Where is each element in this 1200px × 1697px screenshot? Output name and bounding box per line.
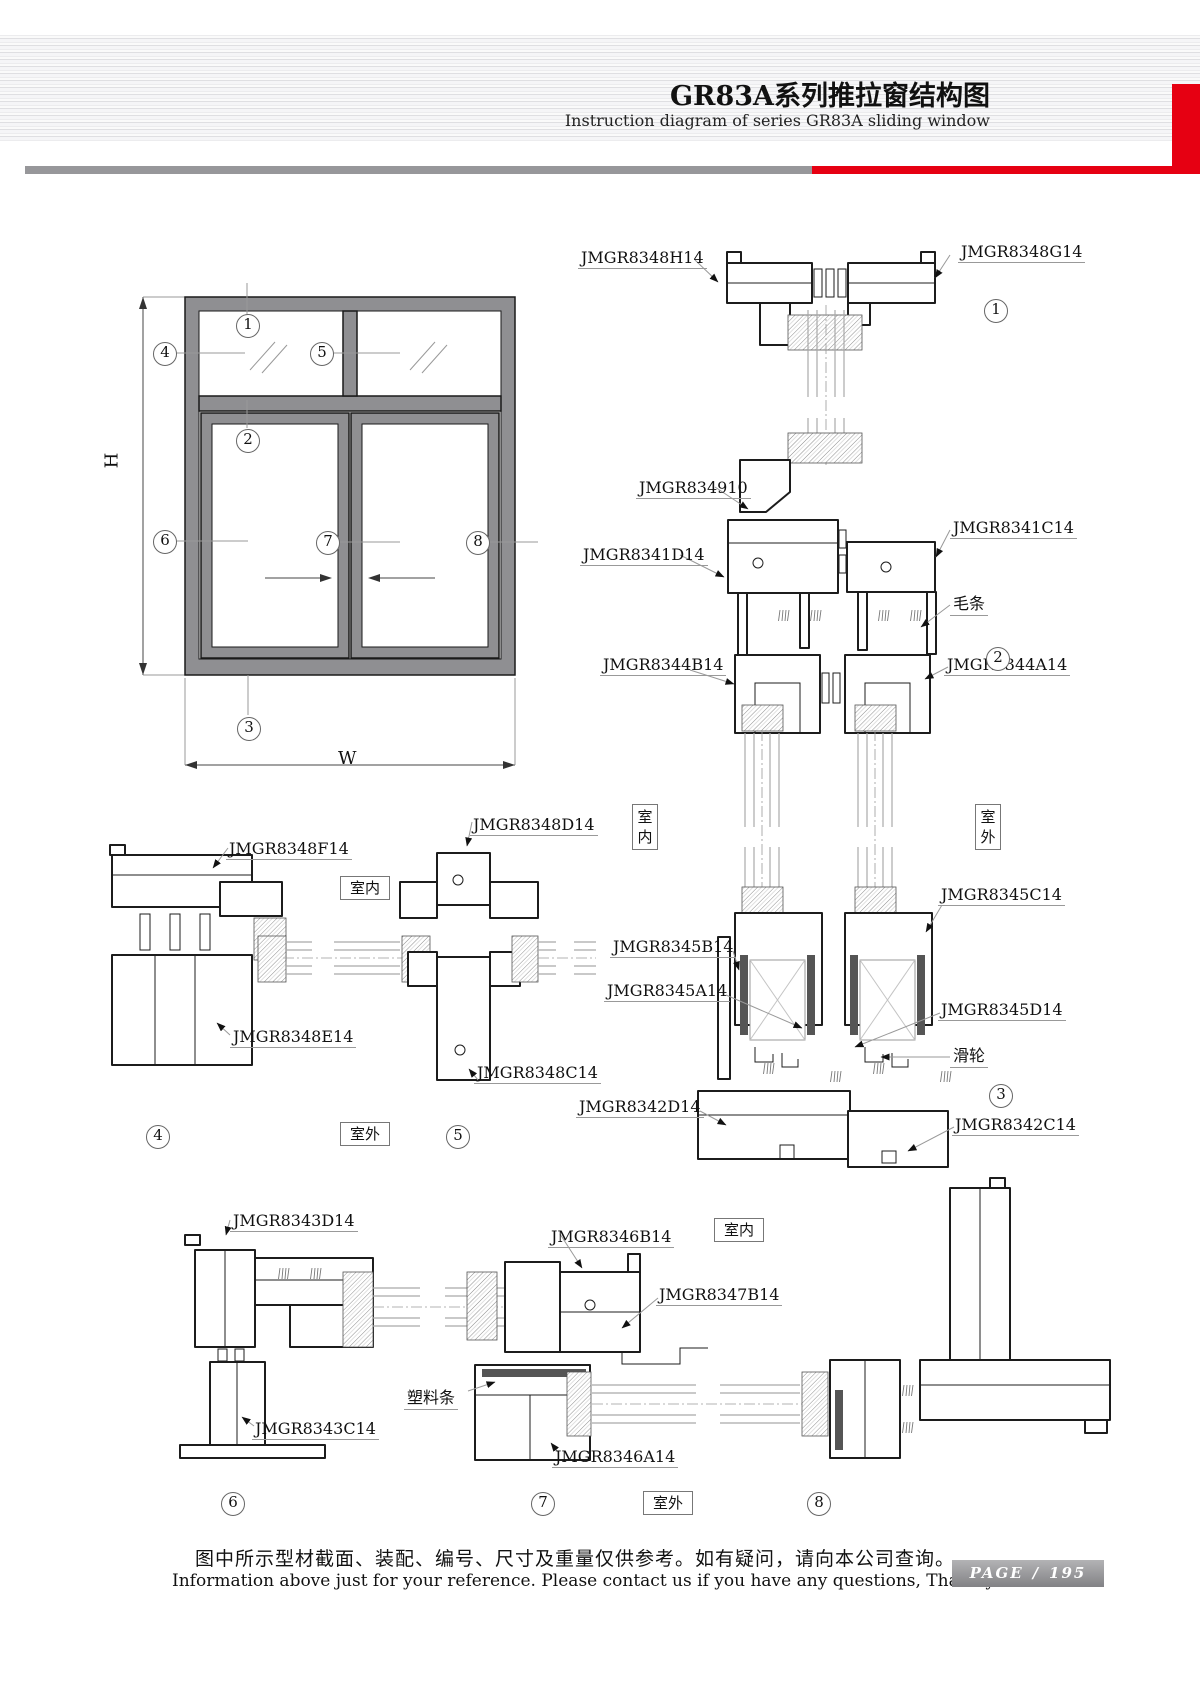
zone-outdoor-bottom: 室外 <box>643 1491 693 1515</box>
section-callout-4: 4 <box>146 1125 170 1149</box>
part-label-hualun: 滑轮 <box>950 1042 988 1068</box>
elevation-linework <box>100 260 540 780</box>
elevation-callout-1: 1 <box>236 314 260 338</box>
transom-legs <box>738 592 936 655</box>
glass-unit-78 <box>567 1372 828 1436</box>
glazing-gasket-top <box>788 315 862 350</box>
weatherstrip-fringes-sill <box>764 1063 952 1082</box>
glass-unit-67 <box>373 1272 510 1340</box>
zone-indoor-vertical: 室内 <box>632 804 658 850</box>
part-label-jmgr8342c14: JMGR8342C14 <box>952 1115 1079 1136</box>
glass-unit-5-right <box>512 936 596 982</box>
section-callout-6: 6 <box>221 1492 245 1516</box>
elevation-callout-3: 3 <box>237 717 261 741</box>
part-label-jmgr8348g14: JMGR8348G14 <box>958 242 1085 263</box>
transom-interlock <box>839 530 846 573</box>
head-interlock <box>814 269 846 297</box>
section-callout-7: 7 <box>531 1492 555 1516</box>
section-callout-5: 5 <box>446 1125 470 1149</box>
elevation-callout-8: 8 <box>466 531 490 555</box>
section-callout-3: 3 <box>989 1084 1013 1108</box>
elevation-callout-6: 6 <box>153 530 177 554</box>
part-label-jmgr8348c14: JMGR8348C14 <box>474 1063 601 1084</box>
zone-indoor-45: 室内 <box>340 876 390 900</box>
part-label-jmgr8346a14: JMGR8346A14 <box>552 1447 678 1468</box>
jamb-profile-8 <box>920 1178 1110 1433</box>
header-rule-red <box>812 166 1200 174</box>
dim-height-label: H <box>101 453 122 469</box>
part-label-jmgr8347b14: JMGR8347B14 <box>656 1285 782 1306</box>
part-label-jmgr8343d14: JMGR8343D14 <box>230 1211 358 1232</box>
glazing-gasket <box>788 433 862 463</box>
stile-profile-8-sash <box>830 1360 913 1458</box>
part-label-jmgr8348h14: JMGR8348H14 <box>578 248 707 269</box>
footer-note-en: Information above just for your referenc… <box>172 1571 1023 1591</box>
section-callout-1: 1 <box>984 299 1008 323</box>
part-label-jmgr8348e14: JMGR8348E14 <box>230 1027 356 1048</box>
part-label-jmgr8345b14: JMGR8345B14 <box>610 937 736 958</box>
section-callout-8: 8 <box>807 1492 831 1516</box>
page-number-bar: PAGE / 195 <box>952 1560 1104 1587</box>
glass-unit-45 <box>258 936 430 982</box>
glass-unit-b-left <box>742 705 783 920</box>
glass-unit-b-right <box>855 705 896 920</box>
part-label-jmgr8346b14: JMGR8346B14 <box>548 1227 674 1248</box>
sash-bottom-left-roller <box>735 913 822 1067</box>
part-label-jmgr8345d14: JMGR8345D14 <box>938 1000 1066 1021</box>
footer-note-cn: 图中所示型材截面、装配、编号、尺寸及重量仅供参考。如有疑问，请向本公司查询。 <box>195 1544 955 1571</box>
part-label-suliaotiao: 塑料条 <box>404 1384 458 1410</box>
header-rule-gray <box>25 166 812 174</box>
part-label-jmgr8348d14: JMGR8348D14 <box>470 815 598 836</box>
page-label: PAGE <box>970 1564 1024 1582</box>
page-title: GR83A系列推拉窗结构图 <box>670 74 990 113</box>
page-number: 195 <box>1049 1564 1086 1582</box>
zone-indoor-bottom: 室内 <box>714 1218 764 1242</box>
side-sections-linework <box>80 750 610 1150</box>
catalog-page: GR83A系列推拉窗结构图 Instruction diagram of ser… <box>0 0 1200 1697</box>
transom-profile-left <box>728 520 838 593</box>
part-label-jmgr8345a14: JMGR8345A14 <box>604 981 730 1002</box>
part-label-jmgr834910: JMGR834910 <box>636 478 751 499</box>
page-subtitle: Instruction diagram of series GR83A slid… <box>565 111 990 130</box>
part-label-jmgr8345c14: JMGR8345C14 <box>938 885 1065 906</box>
page-separator: / <box>1033 1564 1040 1582</box>
elevation-callout-2: 2 <box>236 429 260 453</box>
part-label-jmgr8344b14: JMGR8344B14 <box>600 655 726 676</box>
section-callout-2: 2 <box>986 647 1010 671</box>
stile-profile-7-upper <box>505 1254 708 1364</box>
part-label-jmgr8341d14: JMGR8341D14 <box>580 545 708 566</box>
head-profile-right <box>848 252 935 325</box>
elevation-callout-4: 4 <box>153 342 177 366</box>
elevation-callout-5: 5 <box>310 342 334 366</box>
elevation-callout-7: 7 <box>316 531 340 555</box>
part-label-jmgr8341c14: JMGR8341C14 <box>950 518 1077 539</box>
transom-profile-right <box>847 542 935 592</box>
sash-bottom-right-roller <box>845 913 932 1067</box>
header-edge-accent <box>1172 84 1200 166</box>
zone-outdoor-45: 室外 <box>340 1122 390 1146</box>
vertical-sections-linework <box>530 215 1090 1195</box>
part-label-jmgr8348f14: JMGR8348F14 <box>226 839 352 860</box>
part-label-jmgr8343c14: JMGR8343C14 <box>252 1419 379 1440</box>
zone-outdoor-vertical: 室外 <box>975 804 1001 850</box>
part-label-maotiao: 毛条 <box>950 590 988 616</box>
